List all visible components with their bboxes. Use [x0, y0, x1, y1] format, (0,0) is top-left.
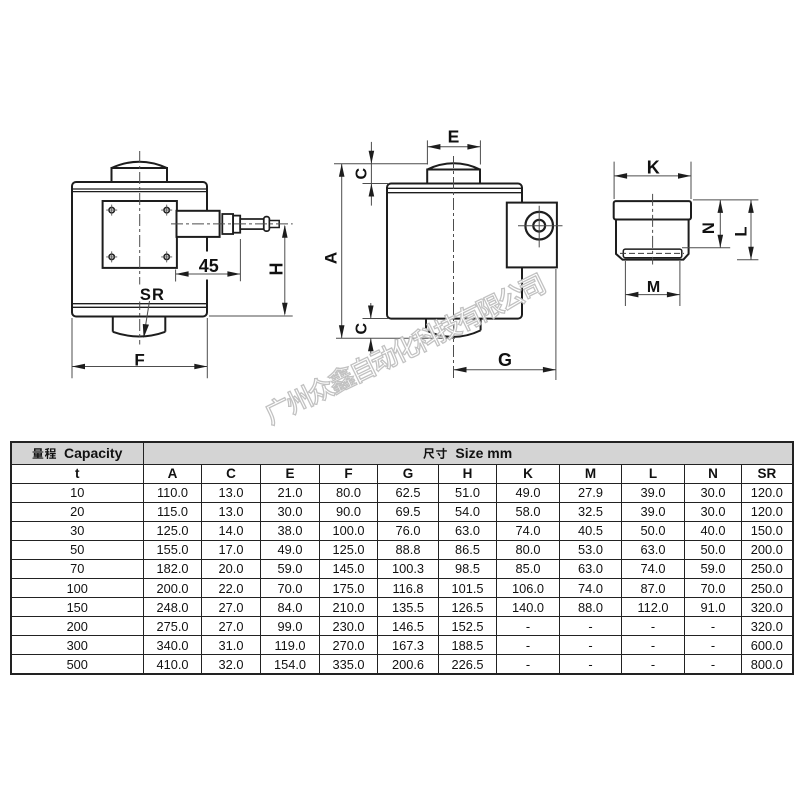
svg-text:E: E	[448, 127, 460, 147]
svg-text:K: K	[647, 157, 660, 177]
svg-text:N: N	[700, 222, 718, 234]
svg-text:SR: SR	[140, 286, 165, 304]
svg-text:M: M	[647, 279, 660, 296]
svg-text:H: H	[267, 263, 287, 276]
svg-text:G: G	[498, 350, 512, 370]
svg-text:45: 45	[199, 256, 219, 276]
svg-text:L: L	[733, 227, 751, 237]
svg-text:F: F	[134, 351, 144, 370]
svg-text:A: A	[322, 252, 341, 264]
svg-text:C: C	[354, 167, 371, 179]
svg-text:C: C	[354, 322, 371, 334]
